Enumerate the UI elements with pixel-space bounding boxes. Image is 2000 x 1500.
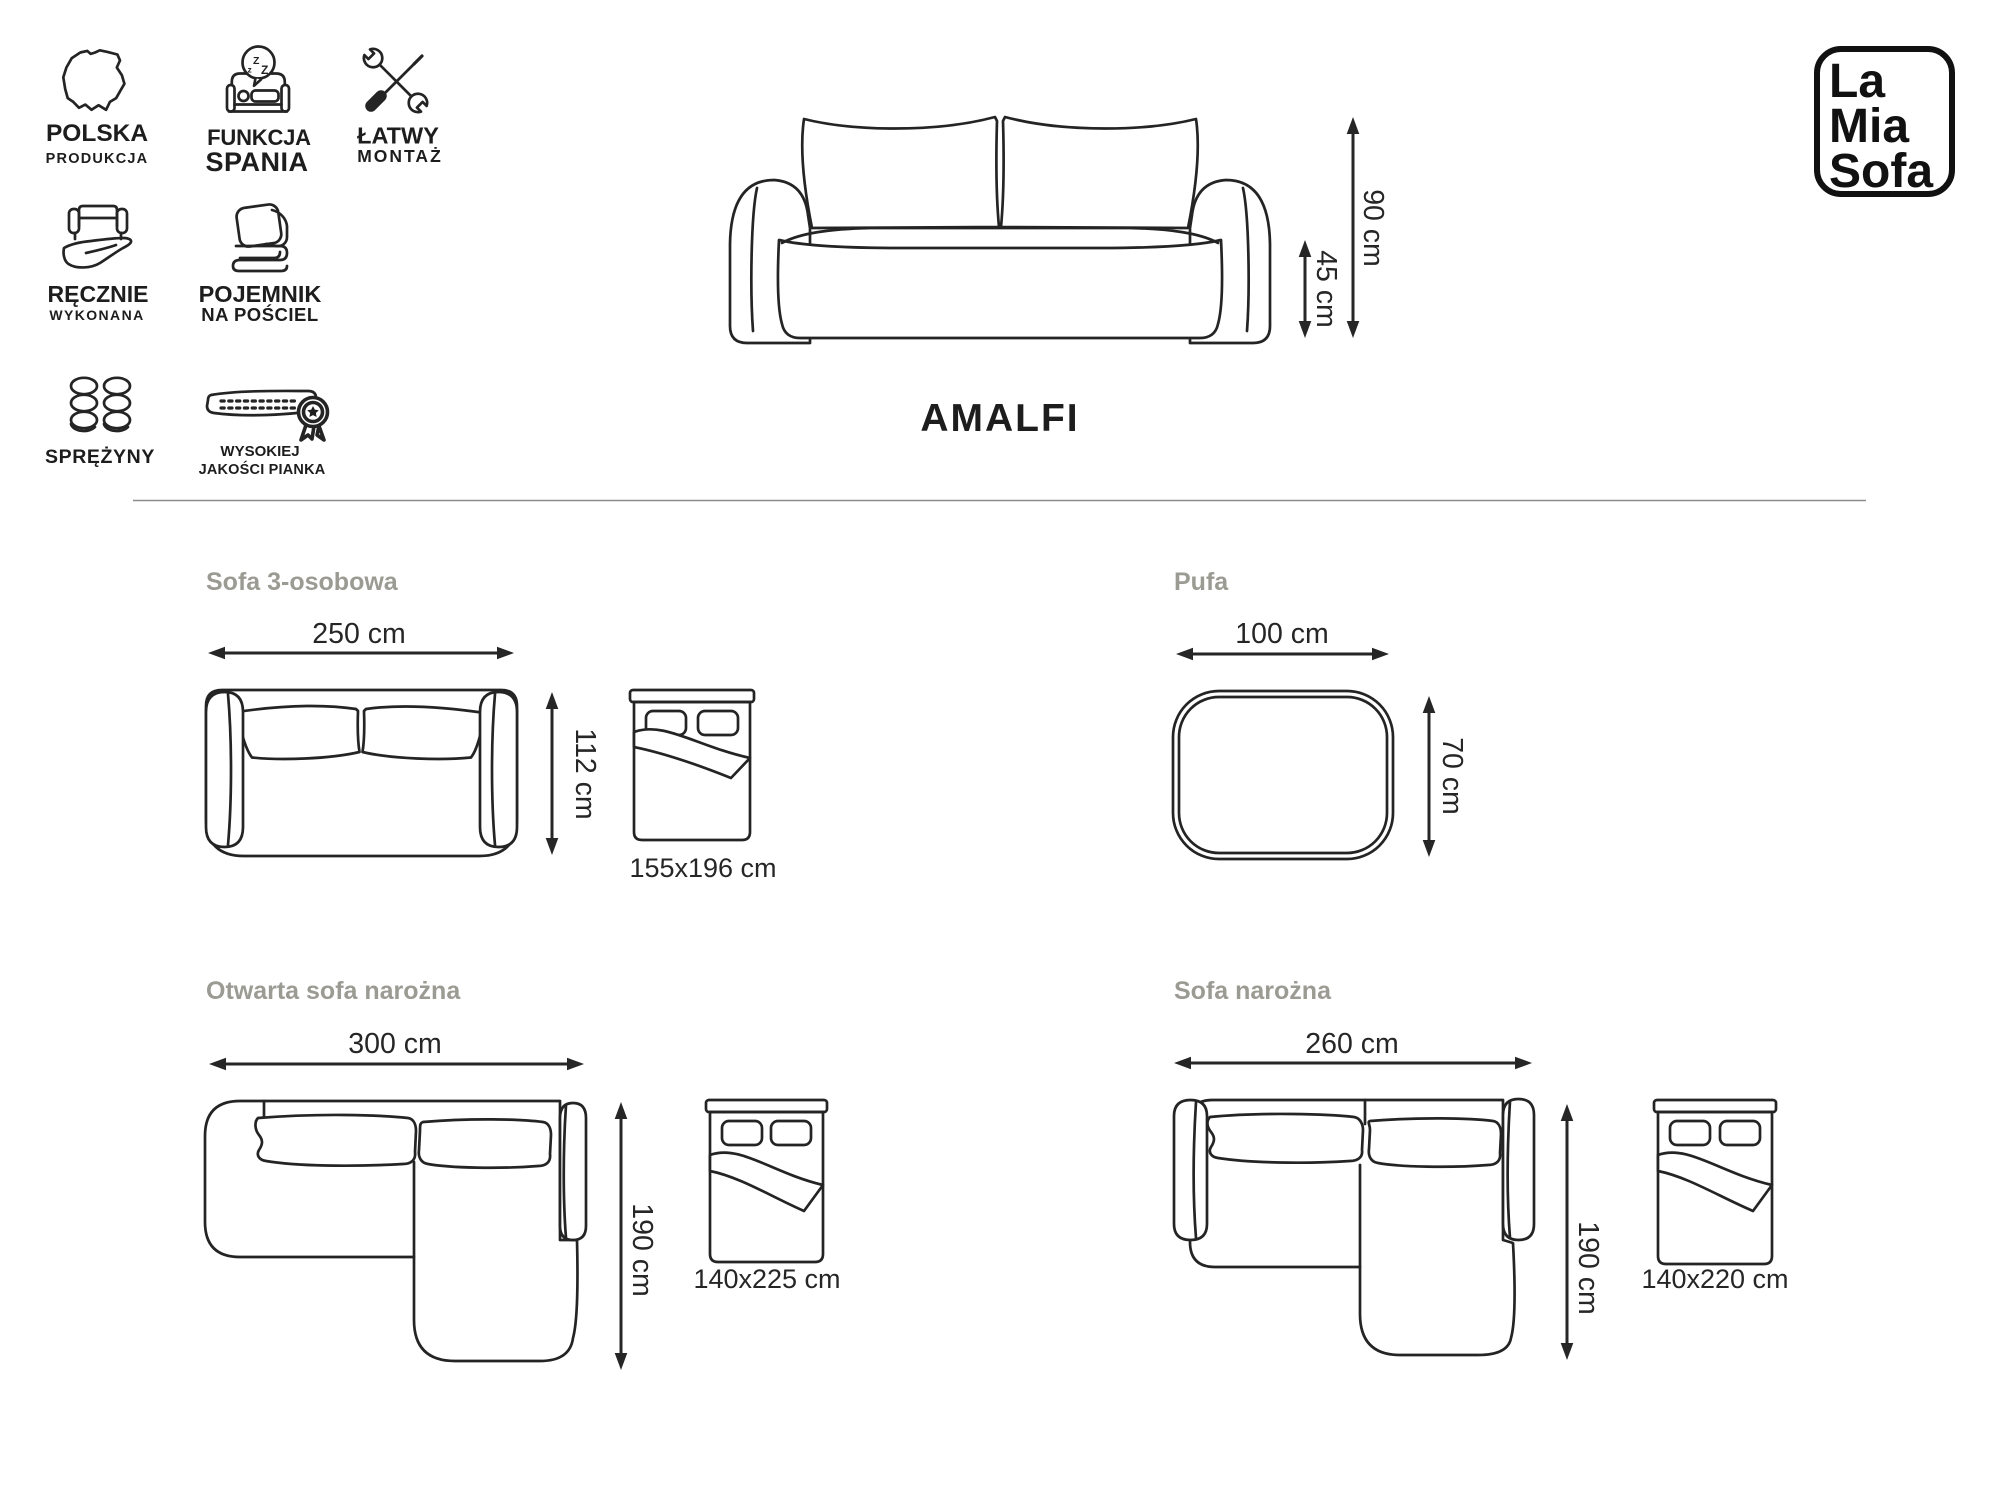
svg-text:140x225 cm: 140x225 cm bbox=[693, 1264, 840, 1294]
svg-text:AMALFI: AMALFI bbox=[920, 397, 1079, 440]
svg-text:Otwarta sofa narożna: Otwarta sofa narożna bbox=[206, 977, 461, 1005]
svg-text:NA POŚCIEL: NA POŚCIEL bbox=[201, 304, 318, 325]
svg-text:45 cm: 45 cm bbox=[1310, 250, 1342, 328]
svg-text:100 cm: 100 cm bbox=[1235, 618, 1328, 650]
svg-text:JAKOŚCI PIANKA: JAKOŚCI PIANKA bbox=[199, 460, 326, 478]
svg-text:112 cm: 112 cm bbox=[569, 728, 601, 819]
svg-text:90 cm: 90 cm bbox=[1357, 189, 1389, 267]
svg-text:PRODUKCJA: PRODUKCJA bbox=[46, 151, 149, 167]
svg-text:Sofa: Sofa bbox=[1829, 145, 1933, 198]
svg-text:190 cm: 190 cm bbox=[626, 1203, 658, 1296]
svg-text:155x196 cm: 155x196 cm bbox=[629, 853, 776, 883]
svg-text:Z: Z bbox=[253, 55, 260, 67]
svg-text:ŁATWY: ŁATWY bbox=[357, 123, 439, 149]
svg-text:Z: Z bbox=[261, 63, 268, 77]
svg-text:RĘCZNIE: RĘCZNIE bbox=[48, 281, 149, 307]
svg-text:SPRĘŻYNY: SPRĘŻYNY bbox=[45, 445, 155, 468]
svg-text:70 cm: 70 cm bbox=[1436, 737, 1468, 815]
svg-text:POLSKA: POLSKA bbox=[46, 120, 148, 147]
svg-text:250 cm: 250 cm bbox=[312, 618, 405, 650]
svg-text:SPANIA: SPANIA bbox=[205, 147, 308, 177]
svg-text:WYSOKIEJ: WYSOKIEJ bbox=[220, 443, 299, 460]
svg-text:Sofa 3-osobowa: Sofa 3-osobowa bbox=[206, 568, 399, 596]
svg-text:MONTAŻ: MONTAŻ bbox=[357, 146, 443, 166]
svg-text:300 cm: 300 cm bbox=[348, 1028, 441, 1060]
svg-text:260 cm: 260 cm bbox=[1305, 1028, 1398, 1060]
svg-text:190 cm: 190 cm bbox=[1572, 1221, 1604, 1314]
svg-text:WYKONANA: WYKONANA bbox=[49, 307, 144, 323]
svg-text:z: z bbox=[248, 65, 252, 75]
svg-text:140x220 cm: 140x220 cm bbox=[1641, 1264, 1788, 1294]
svg-text:Pufa: Pufa bbox=[1174, 568, 1229, 596]
svg-text:Sofa narożna: Sofa narożna bbox=[1174, 977, 1332, 1005]
